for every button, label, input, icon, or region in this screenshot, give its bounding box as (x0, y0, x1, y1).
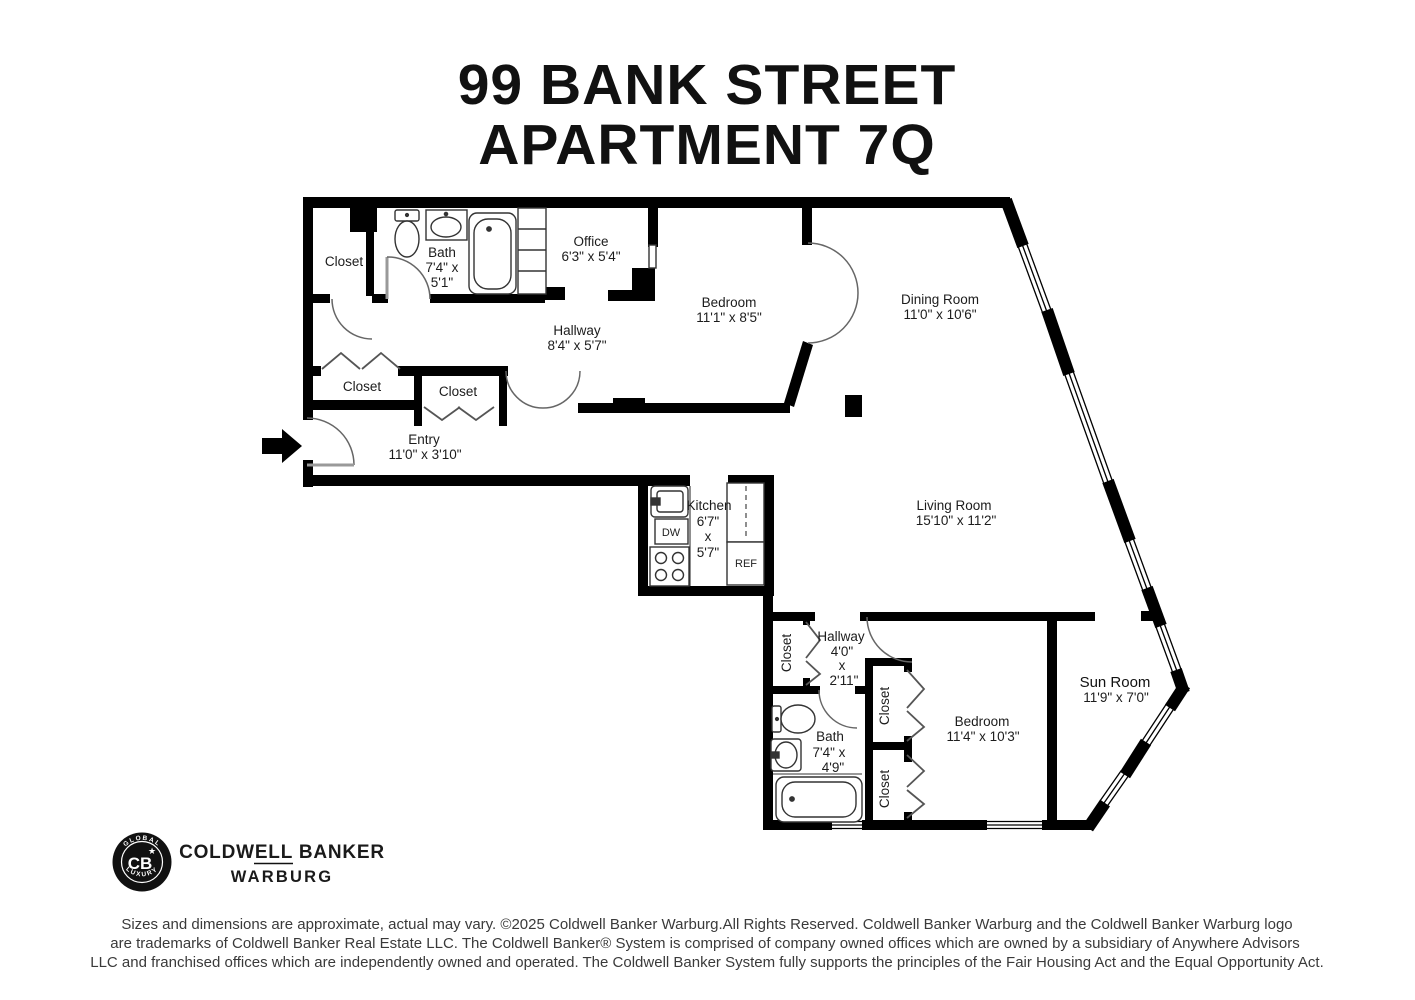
disclaimer-block: Sizes and dimensions are approximate, ac… (90, 916, 1324, 971)
shelving-unit (518, 208, 546, 294)
badge-star-icon: ★ (148, 846, 156, 856)
label-refrigerator: REF (735, 558, 757, 570)
disclaimer-line-1: Sizes and dimensions are approximate, ac… (121, 916, 1292, 933)
kitchen-sink-icon (651, 486, 688, 517)
label-hallway-lower-dim1: 4'0" (831, 644, 854, 659)
label-bath-lower-dim1: 7'4" x (813, 745, 846, 760)
title-line-1: 99 BANK STREET (458, 53, 957, 117)
label-bath-top-dim1: 7'4" x (426, 260, 459, 275)
label-bath-top: Bath (428, 245, 456, 260)
global-luxury-badge-icon: GLOBAL LUXURY CB ★ (113, 833, 172, 892)
label-hallway-lower: Hallway (817, 629, 865, 644)
label-hallway-lower-dim2: 2'11" (830, 673, 859, 688)
label-dishwasher: DW (662, 527, 681, 539)
label-bedroom-lower: Bedroom (955, 714, 1010, 729)
badge-monogram: CB (128, 854, 153, 873)
label-hallway-top-dims: 8'4" x 5'7" (547, 338, 606, 353)
label-bedroom-lower-dims: 11'4" x 10'3" (946, 729, 1019, 744)
title-line-2: APARTMENT 7Q (478, 113, 935, 177)
entry-arrow-icon (262, 429, 302, 463)
logo-division: WARBURG (231, 868, 333, 886)
label-entry-dims: 11'0" x 3'10" (388, 447, 461, 462)
label-office-dims: 6'3" x 5'4" (561, 249, 620, 264)
bathtub-icon (469, 213, 516, 294)
label-entry: Entry (408, 432, 440, 447)
label-closet-mid-right: Closet (439, 384, 478, 399)
sink-lower-icon (771, 739, 801, 771)
disclaimer-line-2: are trademarks of Coldwell Banker Real E… (110, 935, 1299, 952)
label-hallway-top: Hallway (553, 323, 601, 338)
label-kitchen-dimx: x (705, 529, 712, 544)
floor-plan-drawing: 99 BANK STREET APARTMENT 7Q (0, 0, 1415, 1000)
label-closet-bedroom-upper: Closet (877, 687, 892, 726)
bathtub-lower-icon (773, 774, 862, 822)
label-living-room-dims: 15'10" x 11'2" (916, 513, 997, 528)
coldwell-banker-logo: GLOBAL LUXURY CB ★ COLDWELL BANKER WARBU… (113, 833, 385, 892)
title-block: 99 BANK STREET APARTMENT 7Q (458, 53, 957, 177)
label-closet-bedroom-lower: Closet (877, 770, 892, 809)
logo-wordmark: COLDWELL BANKER (179, 842, 385, 863)
label-dining-room: Dining Room (901, 292, 979, 307)
stove-icon (650, 547, 689, 586)
sink-icon (426, 210, 467, 240)
label-hallway-lower-dimx: x (839, 658, 846, 673)
floor-plan-page: 99 BANK STREET APARTMENT 7Q (0, 0, 1415, 1000)
label-bath-lower-dim2: 4'9" (822, 760, 845, 775)
label-office: Office (573, 234, 608, 249)
label-kitchen: Kitchen (686, 498, 731, 513)
label-dining-room-dims: 11'0" x 10'6" (903, 307, 976, 322)
label-bedroom-top-dims: 11'1" x 8'5" (696, 310, 762, 325)
toilet-lower-icon (772, 705, 815, 733)
toilet-icon (395, 210, 419, 257)
label-kitchen-dim2: 5'7" (697, 545, 720, 560)
label-sun-room-dims: 11'9" x 7'0" (1083, 690, 1149, 705)
disclaimer-line-3: LLC and franchised offices which are ind… (90, 954, 1324, 971)
label-bath-top-dim2: 5'1" (431, 275, 454, 290)
label-closet-top: Closet (325, 254, 364, 269)
label-living-room: Living Room (916, 498, 991, 513)
label-bath-lower: Bath (816, 729, 844, 744)
label-closet-lower-hall: Closet (779, 634, 794, 673)
label-sun-room: Sun Room (1080, 674, 1151, 691)
label-bedroom-top: Bedroom (702, 295, 757, 310)
label-closet-mid-left: Closet (343, 379, 382, 394)
label-kitchen-dim1: 6'7" (697, 514, 720, 529)
office-door-jamb (649, 245, 656, 268)
